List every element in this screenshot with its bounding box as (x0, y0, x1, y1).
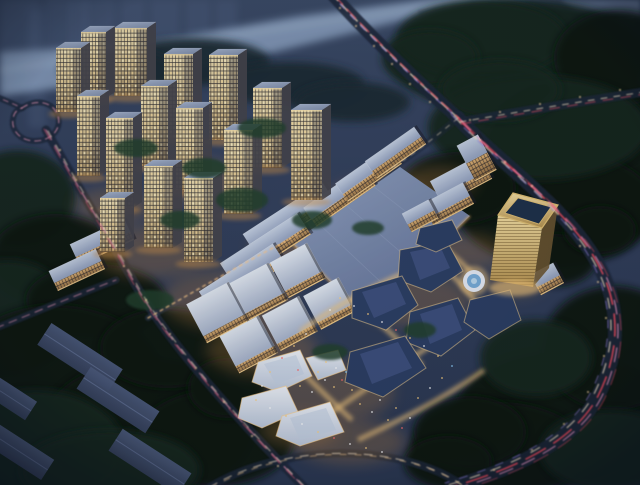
blue-tint-overlay (0, 0, 640, 485)
aerial-night-rendering (0, 0, 640, 485)
rendering-viewport (0, 0, 640, 485)
